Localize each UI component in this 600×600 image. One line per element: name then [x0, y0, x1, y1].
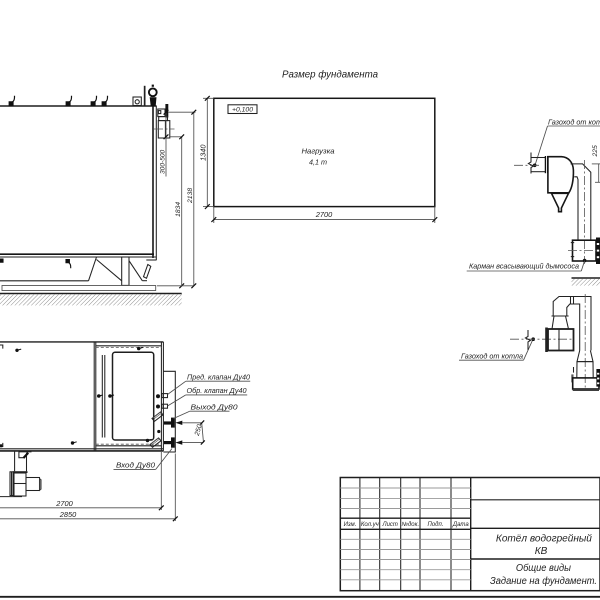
svg-text:Пред. клапан Ду40: Пред. клапан Ду40 [187, 372, 251, 381]
svg-text:Общие виды: Общие виды [516, 562, 572, 574]
svg-text:Размер фундамента: Размер фундамента [282, 69, 378, 81]
svg-text:2850: 2850 [59, 510, 77, 519]
svg-text:Подп.: Подп. [428, 522, 444, 528]
svg-text:Дата: Дата [452, 522, 469, 528]
svg-text:300-500: 300-500 [160, 149, 167, 174]
svg-text:Задание на фундамент.: Задание на фундамент. [490, 575, 597, 587]
svg-text:Изм.: Изм. [344, 522, 357, 528]
svg-text:Газоход от котла: Газоход от котла [461, 351, 523, 360]
svg-text:Обр. клапан Ду40: Обр. клапан Ду40 [187, 386, 248, 395]
svg-text:225: 225 [592, 145, 599, 158]
svg-text:Котёл водогрейный: Котёл водогрейный [496, 534, 592, 545]
svg-text:№док.: №док. [401, 521, 419, 528]
svg-text:КВ: КВ [535, 546, 548, 557]
svg-text:Вход Ду80: Вход Ду80 [116, 461, 156, 470]
svg-text:2700: 2700 [55, 499, 73, 508]
svg-text:1834: 1834 [175, 202, 182, 217]
svg-text:2138: 2138 [187, 188, 194, 204]
svg-text:4,1 т: 4,1 т [309, 158, 327, 167]
svg-text:Газоход от кот: Газоход от кот [548, 117, 600, 126]
svg-text:Карман всасывающий дымососа: Карман всасывающий дымососа [469, 261, 579, 270]
svg-text:Лист: Лист [381, 522, 397, 528]
svg-text:+0,100: +0,100 [232, 106, 254, 113]
svg-text:1340: 1340 [198, 144, 207, 161]
svg-text:Нагрузка: Нагрузка [302, 147, 335, 156]
svg-text:Выход Ду80: Выход Ду80 [191, 402, 239, 411]
svg-text:Кол.уч: Кол.уч [361, 522, 379, 528]
svg-text:2700: 2700 [315, 210, 333, 219]
